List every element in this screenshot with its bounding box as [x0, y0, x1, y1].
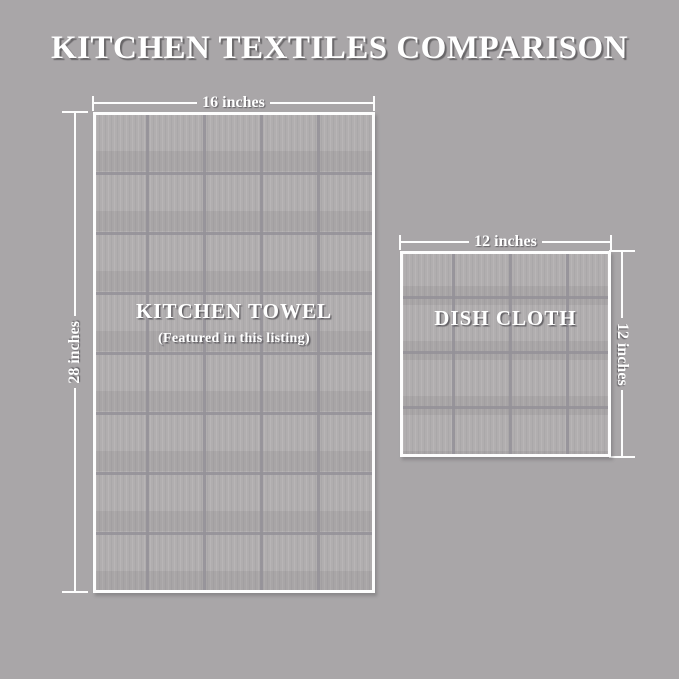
dimension-line [621, 252, 623, 318]
dimension-line [542, 241, 610, 243]
towel-width-label: 16 inches [202, 94, 265, 112]
towel-name-label: KITCHEN TOWEL [93, 299, 375, 324]
comparison-infographic: KITCHEN TEXTILES COMPARISON 16 inches 28… [0, 0, 679, 679]
dish-cloth-swatch [400, 251, 611, 457]
towel-featured-note: (Featured in this listing) [93, 331, 375, 347]
dish-cloth-width-label: 12 inches [474, 233, 537, 251]
towel-height-label: 28 inches [66, 321, 84, 384]
dimension-tick [373, 96, 375, 111]
dimension-tick [610, 235, 612, 250]
dimension-line [74, 113, 76, 316]
towel-width-dimension: 16 inches [92, 95, 375, 111]
dish-cloth-width-dimension: 12 inches [399, 234, 612, 250]
dish-cloth-name-label: DISH CLOTH [400, 306, 611, 331]
dish-cloth-height-dimension: 12 inches [609, 250, 635, 458]
dish-cloth-height-label: 12 inches [613, 323, 631, 386]
dimension-line [401, 241, 469, 243]
dimension-line [270, 102, 373, 104]
dimension-tick [609, 456, 635, 458]
kitchen-towel-swatch [93, 112, 375, 593]
towel-height-dimension: 28 inches [62, 111, 88, 593]
dimension-tick [62, 591, 88, 593]
page-title: KITCHEN TEXTILES COMPARISON [0, 30, 679, 67]
dimension-line [74, 388, 76, 591]
dimension-line [621, 390, 623, 456]
dimension-line [94, 102, 197, 104]
